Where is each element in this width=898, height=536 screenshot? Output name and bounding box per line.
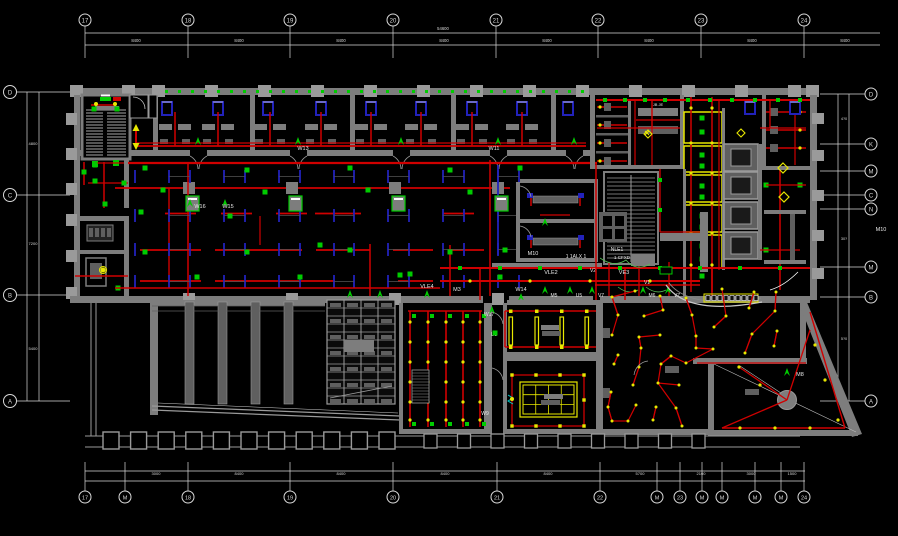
svg-text:M8: M8 — [796, 372, 804, 378]
svg-text:M6: M6 — [649, 293, 656, 299]
svg-text:M: M — [700, 496, 705, 502]
svg-text:54600: 54600 — [437, 26, 449, 31]
svg-text:W16: W16 — [194, 204, 205, 210]
svg-text:C: C — [869, 194, 874, 200]
svg-text:8400: 8400 — [131, 38, 141, 43]
svg-text:W9: W9 — [481, 411, 489, 417]
svg-text:8400: 8400 — [234, 38, 244, 43]
svg-text:8400: 8400 — [544, 471, 554, 476]
svg-text:8400: 8400 — [644, 38, 654, 43]
svg-text:M: M — [869, 266, 874, 272]
svg-text:U5: U5 — [576, 293, 583, 299]
svg-text:M10: M10 — [528, 251, 539, 257]
svg-text:W11: W11 — [489, 146, 500, 152]
svg-text:C: C — [8, 194, 13, 200]
svg-text:M: M — [123, 496, 128, 502]
svg-text:1 CFXD: 1 CFXD — [614, 255, 631, 260]
svg-text:19: 19 — [287, 19, 294, 25]
svg-text:24: 24 — [801, 19, 808, 25]
svg-text:M: M — [655, 496, 660, 502]
svg-text:N: N — [869, 208, 873, 214]
svg-text:18: 18 — [185, 19, 192, 25]
svg-text:23: 23 — [698, 19, 705, 25]
svg-text:24: 24 — [801, 496, 807, 502]
svg-text:VLE2: VLE2 — [544, 270, 557, 276]
svg-text:D: D — [869, 93, 874, 99]
svg-text:W17: W17 — [484, 312, 495, 318]
svg-text:M: M — [720, 496, 725, 502]
svg-text:2100: 2100 — [697, 471, 707, 476]
svg-text:1500: 1500 — [788, 471, 798, 476]
svg-text:21: 21 — [494, 496, 500, 502]
svg-text:M: M — [753, 496, 758, 502]
svg-text:M: M — [779, 496, 784, 502]
svg-text:17: 17 — [82, 19, 89, 25]
svg-text:JB JE: JB JE — [653, 102, 664, 107]
svg-text:A: A — [8, 400, 12, 406]
svg-text:V7: V7 — [598, 293, 604, 299]
svg-text:NLE1: NLE1 — [611, 247, 624, 253]
svg-text:4800: 4800 — [29, 141, 39, 146]
svg-text:W13: W13 — [297, 146, 308, 152]
svg-text:A: A — [869, 400, 873, 406]
svg-text:22: 22 — [597, 496, 603, 502]
svg-text:17: 17 — [82, 496, 88, 502]
svg-text:4?0: 4?0 — [841, 117, 847, 121]
svg-text:W14: W14 — [515, 287, 526, 293]
svg-text:D: D — [8, 91, 13, 97]
svg-text:5400: 5400 — [29, 346, 39, 351]
svg-text:K: K — [869, 143, 873, 149]
svg-text:20: 20 — [390, 19, 397, 25]
svg-text:8400: 8400 — [747, 38, 757, 43]
svg-text:30?: 30? — [841, 237, 847, 241]
svg-text:8400: 8400 — [439, 38, 449, 43]
svg-text:7200: 7200 — [29, 241, 39, 246]
svg-text:19: 19 — [287, 496, 293, 502]
svg-text:W15: W15 — [222, 204, 233, 210]
svg-text:22: 22 — [595, 19, 602, 25]
svg-text:8400: 8400 — [441, 471, 451, 476]
svg-text:5700: 5700 — [636, 471, 646, 476]
svg-text:1 1ALX 1: 1 1ALX 1 — [566, 254, 587, 260]
svg-text:M3: M3 — [453, 287, 461, 293]
svg-text:23: 23 — [677, 496, 683, 502]
svg-text:18: 18 — [185, 496, 191, 502]
svg-text:8400: 8400 — [840, 38, 850, 43]
svg-text:VE3: VE3 — [619, 270, 629, 276]
svg-text:21: 21 — [493, 19, 500, 25]
svg-text:V1: V1 — [644, 280, 650, 286]
svg-text:B: B — [8, 294, 12, 300]
svg-text:M: M — [869, 170, 874, 176]
svg-text:8400: 8400 — [337, 471, 347, 476]
svg-text:20: 20 — [390, 496, 396, 502]
svg-text:3000: 3000 — [747, 471, 757, 476]
svg-text:5?0: 5?0 — [841, 337, 847, 341]
svg-text:8400: 8400 — [235, 471, 245, 476]
svg-text:8400: 8400 — [336, 38, 346, 43]
svg-text:VLE4: VLE4 — [420, 284, 433, 290]
svg-text:M5: M5 — [551, 293, 558, 299]
svg-text:8400: 8400 — [542, 38, 552, 43]
svg-text:M10: M10 — [876, 227, 887, 233]
svg-text:B: B — [869, 296, 873, 302]
svg-text:3000: 3000 — [152, 471, 162, 476]
